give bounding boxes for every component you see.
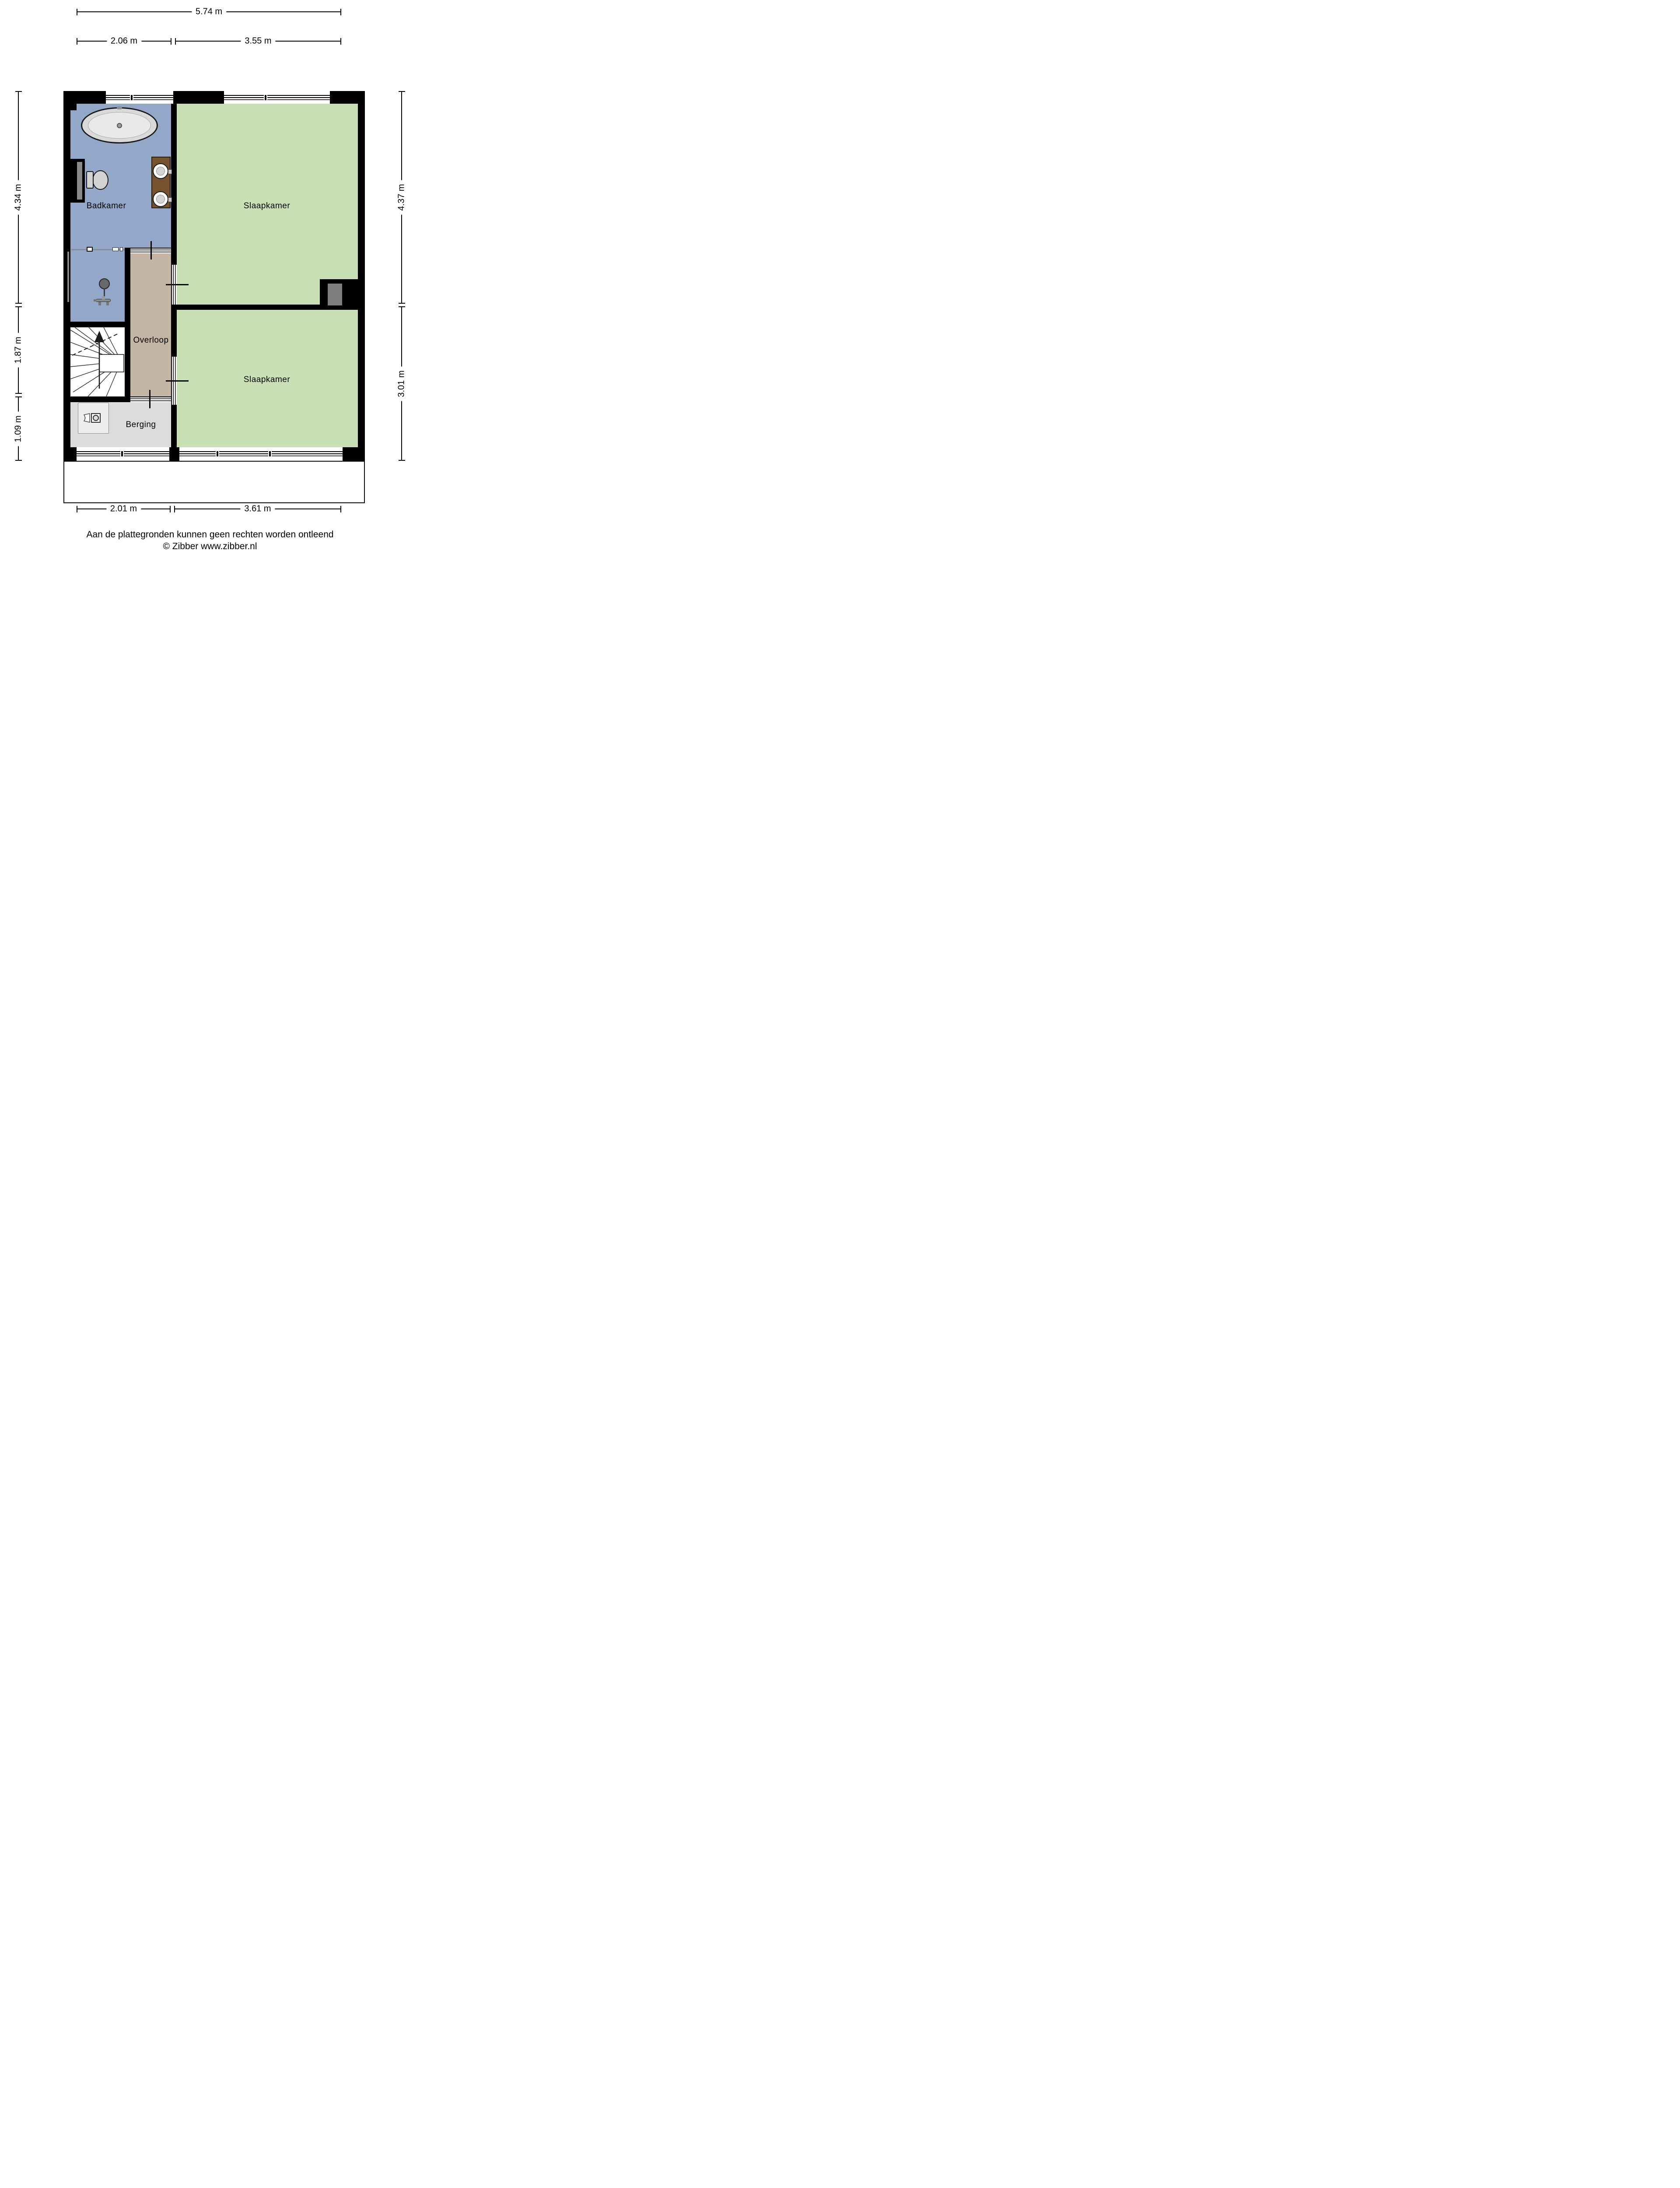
duct-icon [328, 284, 342, 305]
dimension-line-top-seg1: 2.06 m [77, 41, 171, 42]
footer-disclaimer: Aan de plattegronden kunnen geen rechten… [0, 529, 420, 540]
wall-top-segment [171, 91, 224, 104]
wall-shower-stairs [63, 322, 130, 327]
room-label-overloop: Overloop [133, 336, 168, 345]
shower-wall-inset [67, 252, 69, 302]
door-marker-slaapkamer-top [166, 284, 189, 285]
dimension-label: 4.37 m [397, 180, 407, 214]
room-label-slaapkamer-bottom: Slaapkamer [244, 375, 290, 385]
wall-berging-slaapkamer [171, 405, 177, 447]
dimension-label: 3.61 m [240, 504, 275, 514]
flat-roof-outline [63, 461, 365, 503]
wall-left [63, 91, 70, 461]
dimension-line-left-seg1: 4.34 m [18, 91, 19, 304]
room-overloop [130, 253, 171, 396]
dimension-label: 3.01 m [397, 366, 407, 401]
wall-bottom-stub [63, 447, 77, 461]
double-sink-icon [151, 157, 171, 208]
window-bottom-right [179, 447, 343, 461]
floor-plan-page: 5.74 m 2.06 m 3.55 m 4.34 m 1.87 m 1.09 … [0, 0, 420, 560]
door-marker-berging [149, 390, 150, 408]
shower-door-hinge [87, 247, 93, 252]
staircase-up-icon [70, 327, 125, 396]
shower-door-handle [112, 247, 119, 251]
dimension-line-bottom-seg1: 2.01 m [77, 508, 171, 509]
room-label-berging: Berging [126, 420, 156, 430]
room-label-slaapkamer-top: Slaapkamer [244, 201, 290, 211]
dimension-label: 5.74 m [192, 7, 226, 17]
door-marker-badkamer [150, 241, 152, 259]
shower-door-handle [120, 247, 123, 251]
wall-bottom-stub [169, 447, 179, 461]
wall-right [358, 91, 365, 461]
door-marker-slaapkamer-bottom [166, 380, 189, 382]
dimension-line-top-seg2: 3.55 m [175, 41, 341, 42]
dimension-label: 1.09 m [14, 411, 24, 446]
window-top-right [224, 91, 330, 104]
dimension-label: 4.34 m [14, 180, 24, 214]
wall-corner-notch [63, 104, 77, 110]
wall-top-segment [330, 91, 365, 104]
wall-top-segment [63, 91, 106, 104]
laundry-basket-icon [83, 413, 90, 423]
wall-overloop-slaapkamer [171, 310, 177, 357]
dimension-label: 3.55 m [241, 36, 275, 46]
washing-machine-icon [91, 413, 101, 423]
door-berging [130, 396, 171, 402]
wall-badkamer-slaapkamer [171, 104, 177, 265]
window-bottom-left [77, 447, 169, 461]
toilet-niche-inset [77, 162, 82, 200]
dimension-line-right-seg1: 4.37 m [401, 91, 402, 304]
wall-stairs-berging [63, 396, 130, 402]
dimension-label: 2.01 m [106, 504, 141, 514]
dimension-line-top-total: 5.74 m [77, 11, 341, 12]
dimension-line-left-seg3: 1.09 m [18, 396, 19, 461]
window-top-left [106, 91, 173, 104]
dimension-line-bottom-seg2: 3.61 m [174, 508, 341, 509]
wall-duct-block [320, 279, 365, 310]
shower-icon [94, 278, 113, 305]
dimension-line-left-seg2: 1.87 m [18, 306, 19, 394]
footer-copyright: © Zibber www.zibber.nl [0, 541, 420, 552]
dimension-label: 2.06 m [107, 36, 141, 46]
dimension-label: 1.87 m [14, 333, 24, 367]
dimension-line-right-seg2: 3.01 m [401, 306, 402, 461]
bathtub-icon [81, 107, 158, 144]
room-label-badkamer: Badkamer [87, 201, 126, 211]
wall-bottom-stub [343, 447, 365, 461]
